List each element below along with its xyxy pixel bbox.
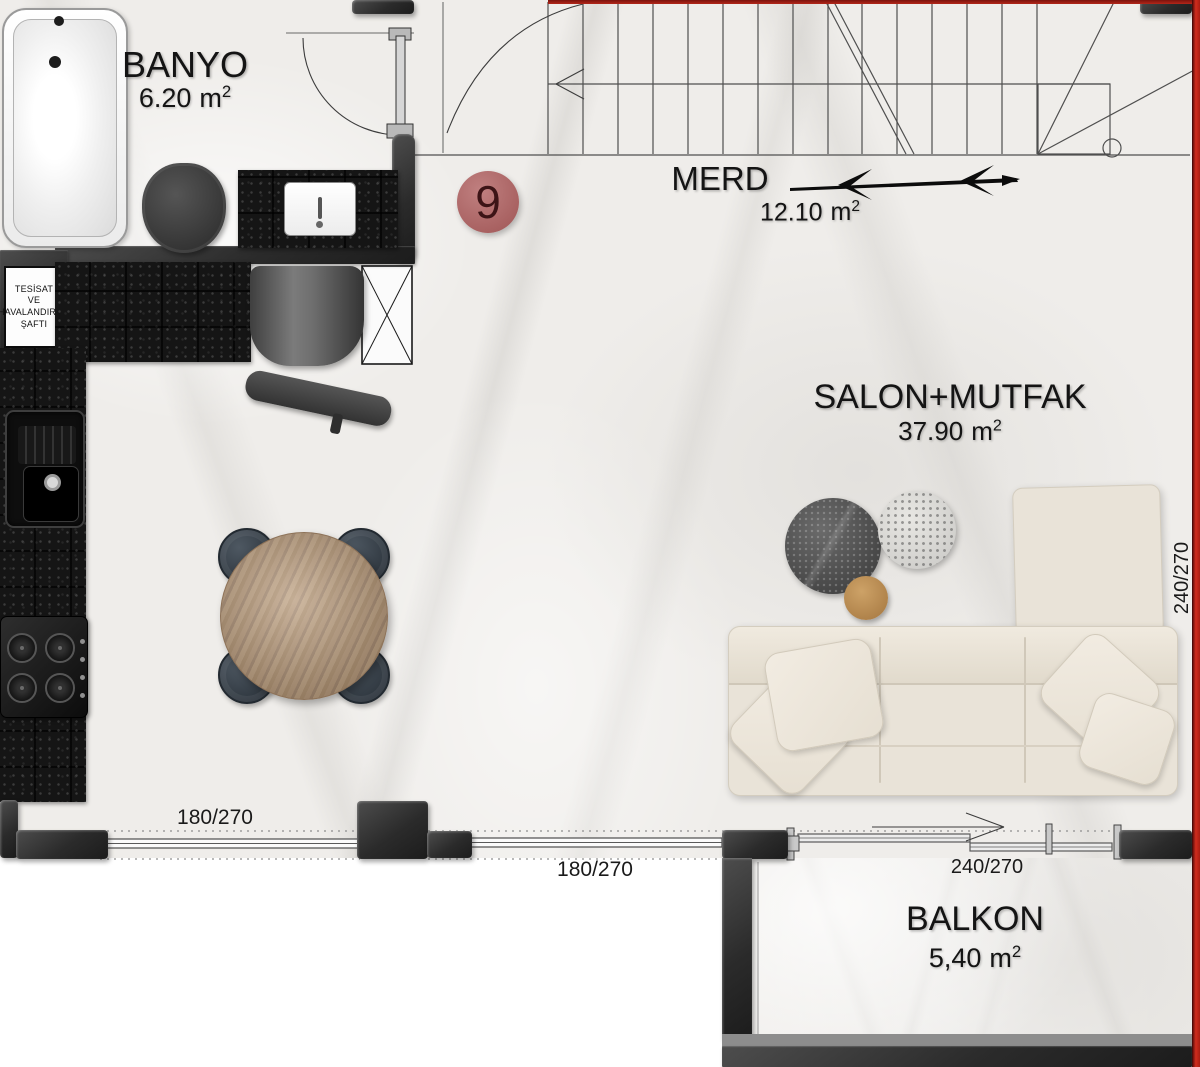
- area-value: 37.90: [898, 416, 963, 446]
- room-area-balkon: 5,40m2: [860, 942, 1090, 974]
- room-label-merd: MERD: [655, 160, 785, 198]
- dining-table: [220, 532, 388, 700]
- area-unit: m: [831, 198, 852, 226]
- room-area-banyo: 6.20m2: [100, 82, 270, 114]
- room-label-balkon: BALKON: [860, 900, 1090, 939]
- area-value: 5,40: [929, 943, 982, 973]
- sofa-pillow: [762, 636, 886, 753]
- area-sup: 2: [1012, 942, 1021, 961]
- sofa-cushion-divider: [1024, 637, 1026, 783]
- area-value: 6.20: [139, 83, 192, 113]
- room-label-salon: SALON+MUTFAK: [800, 378, 1100, 417]
- dim-balcony-door: 240/270: [912, 856, 1062, 879]
- area-unit: m: [989, 943, 1012, 973]
- area-unit: m: [199, 83, 222, 113]
- area-value: 12.10: [760, 198, 823, 226]
- area-sup: 2: [222, 82, 231, 101]
- dim-window-mid: 180/270: [520, 858, 670, 882]
- room-area-salon: 37.90m2: [800, 416, 1100, 447]
- area-sup: 2: [993, 416, 1002, 434]
- sofa-chaise: [1012, 484, 1164, 638]
- area-unit: m: [971, 416, 993, 446]
- wall-red-top: [548, 0, 1200, 4]
- dim-side-wall: 240/270: [1169, 523, 1195, 633]
- dim-window-left: 180/270: [140, 806, 290, 830]
- room-area-merd: 12.10m2: [745, 198, 875, 227]
- room-label-banyo: BANYO: [100, 44, 270, 86]
- rug-round-tan: [844, 576, 888, 620]
- rug-round-light: [878, 491, 956, 569]
- unit-number: 9: [475, 175, 501, 229]
- floor-plan: TESİSAT VE HAVALANDIRMA ŞAFTI: [0, 0, 1200, 1067]
- area-sup: 2: [851, 198, 860, 215]
- unit-number-badge: 9: [457, 171, 519, 233]
